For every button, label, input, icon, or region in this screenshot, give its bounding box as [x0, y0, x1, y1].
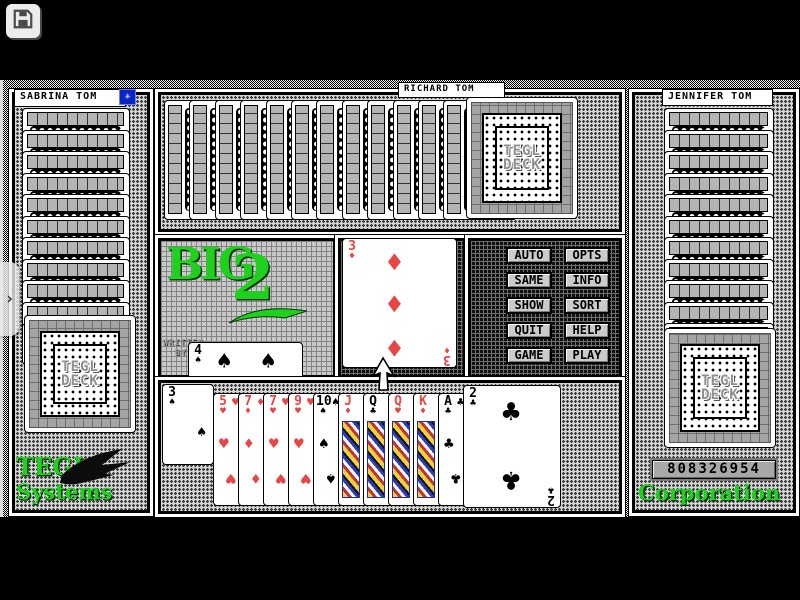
card-corner: J♦ [341, 396, 355, 416]
card-back-bar [27, 177, 124, 191]
brand-corporation: Corporation [638, 482, 780, 504]
side-panel-toggle[interactable]: › [0, 262, 19, 336]
card-corner: 2♣ [544, 485, 558, 505]
suit-pip-hearts: ♥ [269, 436, 279, 452]
card-back-bar [371, 105, 385, 214]
play-button[interactable]: PLAY [564, 347, 610, 364]
card-corner: 5♥ [216, 396, 230, 416]
written-by-line2: BY [175, 348, 187, 357]
suit-pip-hearts: ♥ [219, 436, 229, 452]
card-back-bar [346, 105, 360, 214]
suit-pip-spades: ♠ [197, 425, 206, 440]
card-back-bar [669, 134, 768, 148]
save-button[interactable] [6, 4, 40, 38]
card-corner: 3♦ [345, 241, 359, 261]
suit-pip-diamonds: ♦ [386, 249, 403, 277]
show-button[interactable]: SHOW [506, 297, 552, 314]
card-back-bar [219, 105, 233, 214]
help-button[interactable]: HELP [564, 322, 610, 339]
same-button[interactable]: SAME [506, 272, 552, 289]
tegl-bird-logo-icon [56, 445, 136, 501]
menu-button-grid: AUTO OPTS SAME INFO SHOW SORT QUIT HELP … [506, 247, 610, 364]
card-corner: 7♦ [241, 396, 255, 416]
card-back-bar [27, 241, 124, 255]
turn-indicator-star-icon: ✳ [119, 89, 136, 105]
card-corner: A♣ [441, 396, 455, 416]
table-card-3-diamonds: 3♦3♦♦♦♦ [342, 238, 457, 368]
card-back-bar [422, 105, 436, 214]
right-deck-card: TEGLDECK [664, 328, 776, 448]
suit-pip-clubs: ♣ [444, 436, 454, 452]
card-corner: K♦ [416, 396, 430, 416]
face-art-band [367, 421, 385, 498]
card-corner: 10♠ [316, 396, 330, 416]
card-back-bar [27, 220, 124, 234]
opts-button[interactable]: OPTS [564, 247, 610, 264]
score-display: 808326954 [652, 460, 776, 479]
card-back-bar [669, 112, 768, 126]
card-back-bar [27, 134, 124, 148]
card-back-bar [320, 105, 334, 214]
card-back-bar [27, 112, 124, 126]
card-corner: 9♥ [291, 396, 305, 416]
card-back-bar [27, 198, 124, 212]
card-back-bar [669, 220, 768, 234]
card-back-bar [27, 155, 124, 169]
mouse-cursor-icon [370, 356, 396, 398]
auto-button[interactable]: AUTO [506, 247, 552, 264]
card-back-bar [669, 155, 768, 169]
played-card-panel: 3♦3♦♦♦♦ [338, 238, 466, 378]
suit-pip-hearts: ♥ [294, 436, 304, 452]
menu-panel: AUTO OPTS SAME INFO SHOW SORT QUIT HELP … [468, 238, 622, 378]
card-back-bar [270, 105, 284, 214]
card-corner: 2♣ [466, 388, 480, 408]
left-player-panel: TEGLDECK TEGL Systems [12, 92, 150, 513]
card-back-bar [669, 284, 768, 298]
suit-pip-spades: ♠ [261, 349, 275, 373]
player-name-right: JENNIFER TOM [662, 89, 773, 106]
card-corner: 7♥ [266, 396, 280, 416]
info-button[interactable]: INFO [564, 272, 610, 289]
deck-label: TEGLDECK [467, 98, 577, 218]
suit-pip-diamonds: ♦ [386, 291, 403, 319]
card-back-bar [447, 105, 461, 214]
big2-logo-two: 2 [231, 249, 274, 307]
suit-pip-clubs: ♣ [502, 464, 520, 494]
suit-pip-hearts: ♥ [301, 470, 311, 486]
player-hand-panel: 3♠♠5♥♥♥♥7♦♦♦♦7♥♥♥♥9♥♥♥♥10♠♠♠♠J♦Q♣Q♥K♦A♣♣… [158, 380, 622, 514]
card-corner: 4♠ [191, 345, 205, 365]
card-back-bar [669, 263, 768, 277]
chevron-right-icon: › [4, 289, 14, 309]
face-art-band [342, 421, 360, 498]
right-player-panel: TEGLDECK 808326954 Corporation [632, 92, 796, 513]
card-back-bar [295, 105, 309, 214]
face-art-band [392, 421, 410, 498]
card-corner: 3♦ [440, 345, 454, 365]
card-corner: Q♥ [391, 396, 405, 416]
top-deck-card: TEGLDECK [466, 97, 578, 219]
card-corner: Q♣ [366, 396, 380, 416]
suit-pip-clubs: ♣ [451, 470, 461, 486]
suit-pip-hearts: ♥ [226, 470, 236, 486]
card-back-bar [397, 105, 411, 214]
player-name-top: RICHARD TOM [398, 82, 505, 98]
floppy-disk-icon [12, 8, 34, 34]
card-back-bar [27, 263, 124, 277]
big2-game-window: TEGLDECK TEGL Systems TEGLDECK [0, 0, 800, 600]
sort-button[interactable]: SORT [564, 297, 610, 314]
game-table: TEGLDECK TEGL Systems TEGLDECK [0, 80, 800, 517]
suit-pip-hearts: ♥ [276, 470, 286, 486]
logo-swoosh-icon [227, 303, 311, 331]
card-back-bar [669, 198, 768, 212]
player-name-left: SABRINA TOM [14, 89, 126, 107]
card-back-bar [669, 177, 768, 191]
hand-card-3-spades[interactable]: 3♠♠ [162, 384, 214, 465]
deck-label: TEGLDECK [25, 316, 135, 432]
card-back-bar [669, 241, 768, 255]
suit-pip-clubs: ♣ [502, 398, 520, 428]
left-deck-card: TEGLDECK [24, 315, 136, 433]
card-back-bar [193, 105, 207, 214]
card-back-bar [168, 105, 182, 214]
card-back-bar [669, 306, 768, 320]
face-art-band [417, 421, 435, 498]
suit-pip-diamonds: ♦ [251, 470, 261, 486]
suit-pip-spades: ♠ [326, 470, 336, 486]
card-back-bar [244, 105, 258, 214]
hand-card-2-clubs[interactable]: 2♣2♣♣♣ [463, 385, 561, 508]
suit-pip-diamonds: ♦ [244, 436, 254, 452]
quit-button[interactable]: QUIT [506, 322, 552, 339]
deck-label: TEGLDECK [665, 329, 775, 447]
card-back-bar [27, 284, 124, 298]
card-corner: 3♠ [165, 387, 179, 407]
suit-pip-spades: ♠ [217, 349, 231, 373]
suit-pip-spades: ♠ [319, 436, 329, 452]
top-player-panel: TEGLDECK [158, 92, 622, 232]
game-button[interactable]: GAME [506, 347, 552, 364]
